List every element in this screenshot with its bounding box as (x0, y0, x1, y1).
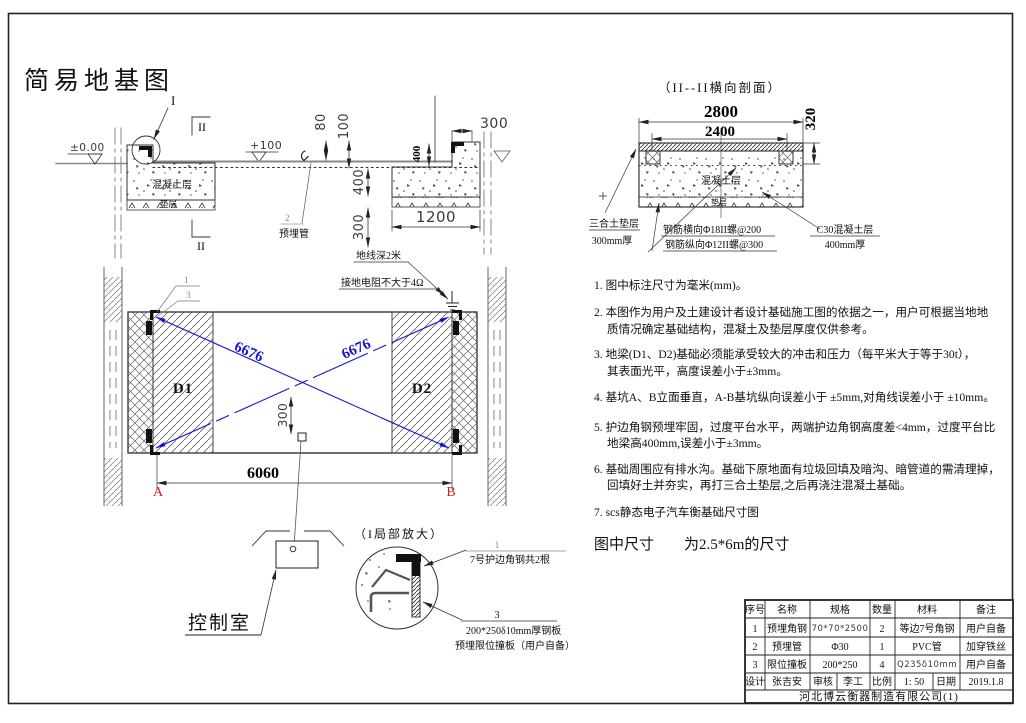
limit-plate (146, 429, 152, 443)
dim-2400: 2400 (705, 124, 735, 140)
lime-cushion-thickness: 300mm厚 (592, 235, 633, 247)
table-cell: 预埋角钢 (767, 622, 807, 635)
note-7: 7. scs静态电子汽车衡基础尺寸图 (594, 505, 759, 519)
dim-300-left: 300 (352, 214, 367, 240)
detail-title: （I局部放大） (354, 526, 444, 541)
dim-1200: 1200 (416, 208, 456, 226)
dim-100: 100 (337, 113, 352, 139)
note-5-line2: 地梁高400mm,误差小于±3mm。 (607, 436, 768, 450)
table-cell: 2 (753, 642, 758, 653)
dim-320: 320 (803, 108, 819, 131)
section-II-mark-top: II (198, 120, 206, 134)
callout-1: 1 (184, 275, 189, 285)
table-cell: 限位撞板 (767, 658, 807, 671)
detail-callout-1: 1 (495, 540, 500, 550)
page-title: 简易地基图 (24, 67, 174, 95)
table-cell: 1 (753, 624, 758, 635)
edge-angle-steel (396, 554, 421, 562)
table-cell: Q235δ10mm (897, 660, 957, 670)
level-zero-label: ±0.00 (70, 142, 105, 154)
note-2-line2: 质情况确定基础结构，混凝土及垫层厚度仅供参考。 (607, 322, 874, 336)
transverse-section-title: （II--II横向剖面） (658, 80, 782, 95)
note-3-line1: 3. 地梁(D1、D2)基础必须能承受较大的冲击和压力（每平米大于等于30t）， (594, 347, 975, 361)
table-cell: 4 (880, 660, 885, 671)
note-3-line2: 其表面光平，高度误差小于±3mm。 (607, 364, 788, 378)
col-header-spec: 规格 (830, 603, 850, 616)
designer-name: 张吉安 (772, 675, 802, 688)
dim-300-right: 300 (480, 116, 508, 132)
rebar-transverse-label: 钢筋横向Φ18II螺@200 (663, 223, 761, 236)
anchor-block-right (779, 151, 793, 164)
conduit-port-icon (290, 546, 296, 552)
point-b-label: B (446, 485, 455, 500)
col-header-seq: 序号 (745, 603, 765, 616)
control-room-label: 控制室 (188, 612, 251, 634)
scale-value: 1: 50 (904, 677, 924, 688)
right-cushion-layer (392, 197, 480, 207)
col-header-remark: 备注 (976, 603, 996, 616)
detail-label-3a: 200*250δ10mm厚钢板 (466, 624, 561, 637)
callout-3: 3 (186, 290, 191, 300)
table-cell: 预埋管 (772, 640, 802, 653)
title-block: 序号 名称 规格 数量 材料 备注 1 预埋角钢 70*70*2500 2 等边… (745, 600, 1013, 703)
note-6-line1: 6. 基础周围应有排水沟。基础下原地面有垃圾回填及暗沟、暗管道的需清理掉， (594, 462, 1000, 476)
table-cell: 等边7号角钢 (900, 622, 955, 635)
beam-d2-label: D2 (412, 381, 432, 397)
table-cell: 用户自备 (966, 658, 1006, 671)
table-cell: 用户自备 (966, 622, 1006, 635)
limit-plate (453, 429, 459, 443)
detail-I-ref: I (171, 93, 175, 108)
ground-wire-label: 地线深2米 (356, 249, 401, 262)
date-value: 2019.1.8 (969, 677, 1004, 688)
cushion-layer-label: 垫层 (711, 197, 727, 207)
table-cell: 3 (753, 660, 758, 671)
col-header-qty: 数量 (872, 603, 892, 616)
date-label: 日期 (936, 676, 956, 688)
scale-label: 比例 (872, 675, 892, 688)
resistance-label: 接地电阻不大于4Ω (341, 276, 423, 289)
detail-label-3b: 预埋限位撞板（用户自备） (455, 639, 575, 652)
col-header-name: 名称 (777, 603, 797, 616)
table-cell: 加穿铁丝 (966, 640, 1006, 653)
concrete-layer-label: 混凝土层 (152, 178, 192, 191)
c30-concrete-label: C30混凝土层 (817, 223, 874, 236)
c30-thickness-label: 400mm厚 (825, 239, 866, 251)
designer-label: 设计 (745, 675, 765, 688)
note-2-line1: 2. 本图作为用户及土建设计者设计基础施工图的依据之一，用户可根据当地地 (594, 305, 989, 319)
beam-d1-label: D1 (173, 381, 193, 397)
table-cell: 2 (880, 624, 885, 635)
steel-deck-slab (639, 143, 803, 151)
pipe-label: 预埋管 (279, 227, 309, 240)
anchor-block-left (646, 151, 660, 164)
cushion-layer-label: 垫层 (160, 199, 177, 209)
limit-plate (453, 321, 459, 335)
dim-400-left: 400 (352, 169, 367, 195)
table-cell: PVC管 (912, 640, 941, 653)
level-plus100-label: +100 (250, 139, 282, 152)
table-cell: 200*250 (823, 660, 858, 671)
table-cell: 70*70*2500 (812, 624, 869, 634)
point-a-label: A (153, 485, 164, 500)
dim-400-top: 400 (411, 145, 423, 162)
drawing-sheet: 简易地基图 ±0.00 +100 I II II 2 (0, 0, 1026, 723)
table-cell: Φ30 (831, 642, 848, 653)
pipe-callout-2: 2 (285, 213, 290, 223)
concrete-layer-label: 混凝土层 (701, 174, 741, 187)
detail-label-1: 7号护边角钢共2根 (470, 553, 550, 566)
note-5-line1: 5. 护边角钢预埋牢固，过度平台水平，两端护边角钢高度差<4mm，过度平台比 (594, 420, 995, 434)
checker-name: 李工 (843, 675, 863, 688)
table-cell: 1 (880, 642, 885, 653)
dim-2800: 2800 (704, 102, 738, 121)
junction-box (298, 433, 306, 441)
note-footer: 图中尺寸 为2.5*6m的尺寸 (594, 536, 789, 553)
limit-plate (146, 321, 152, 335)
lime-cushion-label: 三合土垫层 (589, 217, 639, 230)
detail-callout-3: 3 (495, 610, 500, 621)
rebar-longitudinal-label: 钢筋纵向Φ12II螺@300 (665, 238, 763, 251)
dim-80: 80 (314, 113, 329, 131)
dim-6060: 6060 (247, 465, 279, 482)
note-4: 4. 基坑A、B立面垂直，A-B基坑纵向误差小于 ±5mm,对角线误差小于 ±1… (594, 390, 995, 404)
checker-label: 审核 (813, 675, 833, 688)
section-II-mark-bottom: II (197, 239, 205, 253)
control-room-box (276, 541, 318, 568)
note-6-line2: 回填好土并夯实，再打三合土垫层,之后再浇注混凝土基础。 (607, 478, 911, 492)
note-1: 1. 图中标注尺寸为毫米(mm)。 (594, 278, 747, 292)
dim-300-plan: 300 (276, 403, 290, 427)
col-header-material: 材料 (917, 603, 937, 616)
company-name: 河北博云衡器制造有限公司(1) (799, 689, 959, 703)
